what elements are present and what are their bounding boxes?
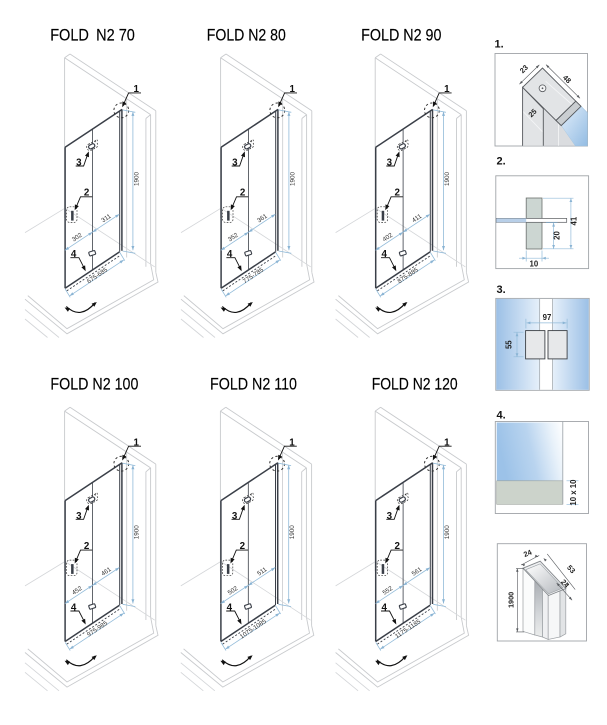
svg-text:3.: 3. xyxy=(497,284,506,296)
svg-text:361: 361 xyxy=(256,212,269,224)
svg-text:FOLD N2 100: FOLD N2 100 xyxy=(50,376,138,394)
svg-text:552: 552 xyxy=(381,585,394,597)
svg-text:FOLD N2 70: FOLD N2 70 xyxy=(50,27,135,45)
svg-text:10: 10 xyxy=(530,260,539,269)
svg-text:FOLD N2 80: FOLD N2 80 xyxy=(207,27,286,45)
svg-text:502: 502 xyxy=(227,585,240,597)
svg-text:1900: 1900 xyxy=(444,525,451,540)
svg-text:1.: 1. xyxy=(495,39,504,51)
svg-text:2.: 2. xyxy=(497,156,506,168)
svg-text:FOLD N2 110: FOLD N2 110 xyxy=(210,376,297,394)
svg-text:1900: 1900 xyxy=(133,525,140,540)
svg-text:1175-1185: 1175-1185 xyxy=(394,618,423,640)
svg-text:452: 452 xyxy=(71,585,84,597)
svg-text:1075-1085: 1075-1085 xyxy=(239,618,268,641)
svg-text:402: 402 xyxy=(381,231,394,243)
svg-text:352: 352 xyxy=(227,231,240,243)
svg-text:311: 311 xyxy=(100,213,113,225)
svg-text:10 x 10: 10 x 10 xyxy=(569,479,578,506)
svg-text:461: 461 xyxy=(100,566,113,578)
svg-text:1900: 1900 xyxy=(133,172,140,187)
svg-text:97: 97 xyxy=(543,313,552,322)
svg-text:561: 561 xyxy=(411,566,424,578)
svg-text:411: 411 xyxy=(411,213,424,225)
svg-text:511: 511 xyxy=(256,566,269,578)
svg-text:1900: 1900 xyxy=(289,172,296,187)
svg-text:1900: 1900 xyxy=(506,592,515,608)
svg-text:55: 55 xyxy=(505,340,514,349)
svg-text:1900: 1900 xyxy=(444,172,451,187)
svg-text:4.: 4. xyxy=(497,410,506,422)
svg-text:302: 302 xyxy=(71,231,84,243)
svg-text:FOLD N2 120: FOLD N2 120 xyxy=(372,376,458,394)
svg-text:41: 41 xyxy=(570,216,579,225)
svg-text:1900: 1900 xyxy=(289,525,296,540)
svg-text:20: 20 xyxy=(552,231,561,240)
svg-text:FOLD N2 90: FOLD N2 90 xyxy=(361,27,441,45)
